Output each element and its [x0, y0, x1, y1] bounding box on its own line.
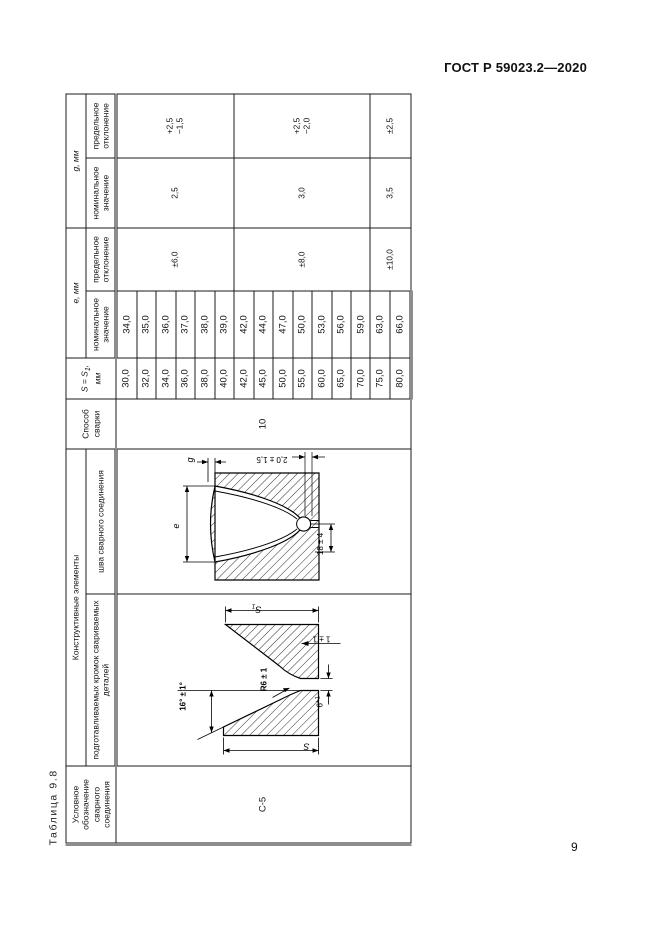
e-tolerance-value-cell: ±6,0 [116, 227, 234, 290]
g-nominal-header-cell: номинальное значение [86, 157, 116, 227]
edges-header-cell: подготавливаемых кромок свариваемых дета… [86, 594, 116, 766]
gost-header: ГОСТ Р 59023.2—2020 [444, 60, 587, 75]
e-nominal-value-cell: 38,0 [195, 291, 214, 358]
page: { "page": { "header": "ГОСТ Р 59023.2—20… [0, 0, 661, 935]
designation-header-cell: Условное обозначение сварного соединения [66, 766, 116, 844]
page-number: 9 [571, 840, 578, 854]
root-face-dimension-label: 1 ± 1 [312, 634, 330, 643]
width-dimension-label: е [171, 523, 181, 528]
g-group-header-cell: g, мм [66, 93, 86, 227]
seam-diagram-svg: е g 2,0 ± 1,5 18 ± 4 [119, 449, 409, 593]
e-group-header-cell: е, мм [66, 227, 86, 357]
s-value-cell: 55,0 [292, 358, 311, 399]
reinforcement-dimension-label: g [185, 457, 195, 462]
e-nominal-header-cell: номинальное значение [86, 291, 116, 358]
g-nominal-value-cell: 3,5 [370, 157, 411, 227]
s-value-cell: 45,0 [253, 358, 272, 399]
s-value-cell: 40,0 [214, 358, 233, 399]
s-value-cell: 36,0 [175, 358, 194, 399]
seam-header-cell: шва сварного соединения [86, 449, 116, 594]
e-nominal-value-cell: 59,0 [351, 291, 370, 358]
method-header-cell: Способ сварки [66, 399, 116, 449]
angle-dimension-label: 16° ± 1° [178, 682, 187, 711]
e-nominal-value-cell: 37,0 [175, 291, 194, 358]
e-tolerance-value-cell: ±10,0 [370, 227, 411, 290]
method-value-cell: 10 [116, 399, 411, 449]
e-nominal-value-cell: 39,0 [214, 291, 233, 358]
e-nominal-value-cell: 44,0 [253, 291, 272, 358]
rotated-table-block: Таблица 9.8 Условное обозначение сварног… [47, 93, 412, 845]
s-value-cell: 38,0 [195, 358, 214, 399]
g-tolerance-value-cell: +2,5−2,0 [234, 93, 370, 157]
g-tolerance-value-cell: +2,5−1,5 [116, 93, 234, 157]
s-value-cell: 42,0 [234, 358, 253, 399]
e-nominal-value-cell: 63,0 [370, 291, 389, 358]
e-nominal-value-cell: 56,0 [331, 291, 350, 358]
s-value-cell: 60,0 [312, 358, 331, 399]
s1-dimension-label: S1 [251, 602, 261, 614]
s-value-cell: 65,0 [331, 358, 350, 399]
g-nominal-value-cell: 3,0 [234, 157, 370, 227]
offset-dimension-label: 2,0 ± 1,5 [255, 455, 287, 464]
s-value-cell: 80,0 [389, 358, 410, 399]
s-header-cell: S = S1, мм [66, 358, 116, 399]
s-value-cell: 30,0 [116, 358, 137, 399]
edges-diagram-svg: 16° ± 1° R6 ± 1 S1 S 1 ± 1 6+1 [119, 594, 409, 766]
e-nominal-value-cell: 34,0 [116, 291, 137, 358]
joint-table: Условное обозначение сварного соединения… [65, 93, 412, 845]
root-width-dimension-label: 18 ± 4 [316, 532, 325, 555]
e-nominal-value-cell: 66,0 [389, 291, 410, 358]
s-value-cell: 34,0 [156, 358, 175, 399]
e-nominal-value-cell: 42,0 [234, 291, 253, 358]
e-tolerance-value-cell: ±8,0 [234, 227, 370, 290]
s-value-cell: 32,0 [136, 358, 155, 399]
seam-diagram: е g 2,0 ± 1,5 18 ± 4 [116, 449, 411, 594]
g-tolerance-value-cell: ±2,5 [370, 93, 411, 157]
e-nominal-value-cell: 50,0 [292, 291, 311, 358]
header-row-2: подготавливаемых кромок свариваемых дета… [86, 93, 116, 843]
s-value-cell: 70,0 [351, 358, 370, 399]
e-tolerance-header-cell: предельное отклонение [86, 227, 116, 290]
s-value-cell: 75,0 [370, 358, 389, 399]
e-nominal-value-cell: 47,0 [273, 291, 292, 358]
gap-dimension-label: 6+1 [315, 695, 324, 707]
g-nominal-value-cell: 2,5 [116, 157, 234, 227]
construct-header-cell: Конструктивные элементы [66, 449, 86, 766]
header-row-1: Условное обозначение сварного соединения… [66, 93, 86, 843]
table-row: С-5 16° ± 1° R6 [116, 93, 137, 843]
radius-dimension-label: R6 ± 1 [259, 667, 268, 691]
e-nominal-value-cell: 36,0 [156, 291, 175, 358]
e-nominal-value-cell: 53,0 [312, 291, 331, 358]
s-value-cell: 50,0 [273, 358, 292, 399]
edges-diagram: 16° ± 1° R6 ± 1 S1 S 1 ± 1 6+1 [116, 594, 411, 766]
e-nominal-value-cell: 35,0 [136, 291, 155, 358]
s-dimension-label: S [303, 741, 309, 751]
g-tolerance-header-cell: предельное отклонение [86, 93, 116, 157]
designation-value-cell: С-5 [116, 766, 411, 844]
table-caption: Таблица 9.8 [47, 93, 62, 845]
